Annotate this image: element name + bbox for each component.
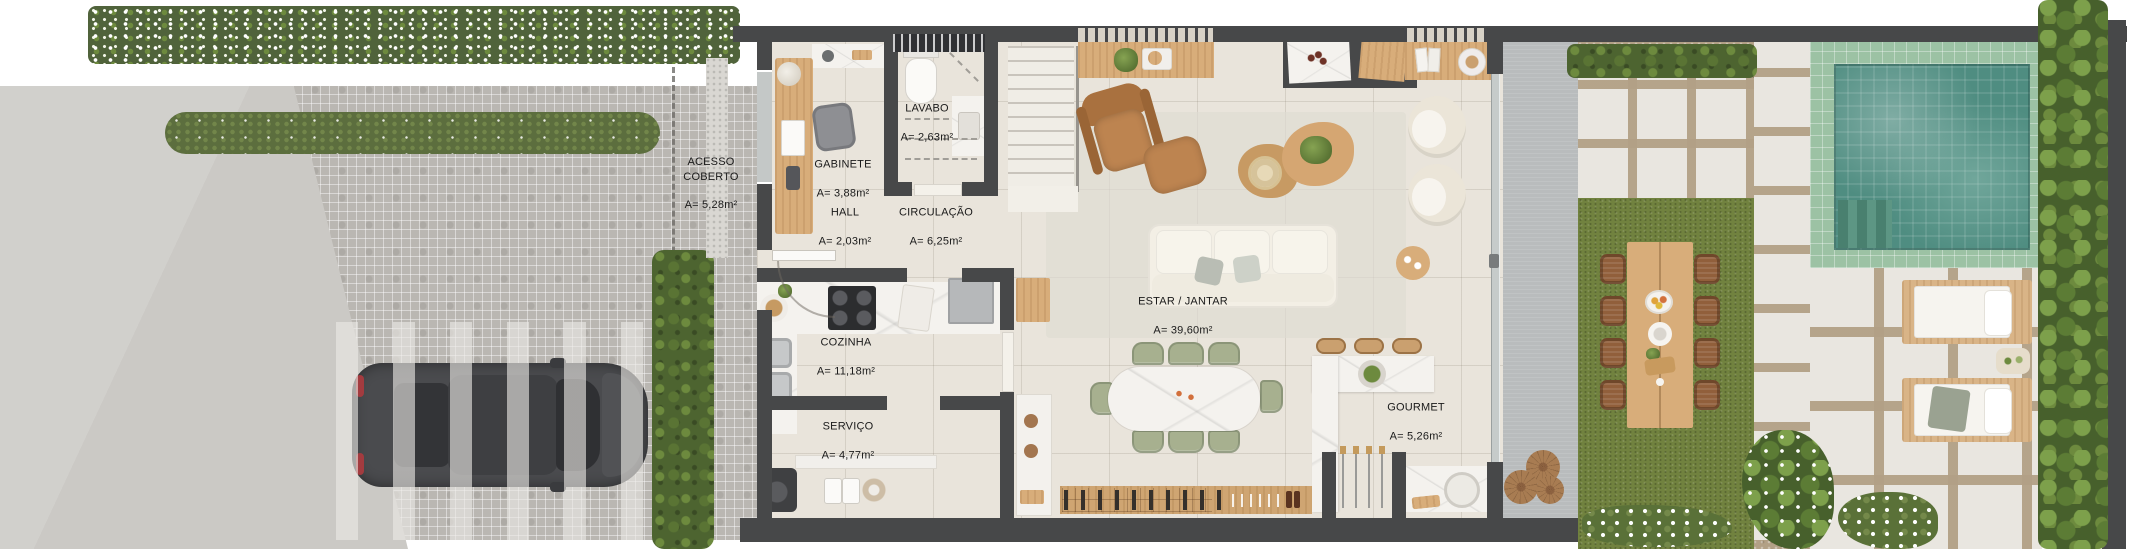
window-top-estar-1 (1075, 28, 1213, 42)
room-area: A= 4,77m² (822, 448, 875, 462)
coffee-table-plant (1300, 136, 1332, 164)
patio-chair-right-3 (1694, 338, 1720, 368)
kitchen-cutting-board (897, 284, 935, 332)
carport-pergola-beams (336, 322, 704, 540)
outer-wall-left-lower (757, 310, 772, 522)
wine-bottles-row (1064, 490, 1224, 510)
outdoor-pouf-2 (1504, 470, 1538, 504)
gourmet-stool-2 (1354, 338, 1384, 354)
boucle-armchair-1-seat (1412, 110, 1446, 148)
leafy-hedge-column (652, 250, 714, 549)
louver-window-lavabo (893, 34, 985, 52)
console-wood-block (1020, 490, 1044, 504)
lounger-2-pillow-sage (1927, 386, 1970, 433)
decanter-1 (1286, 491, 1292, 508)
sliding-door-handle (1489, 254, 1499, 268)
yard-paver-grid (1578, 78, 1754, 198)
room-name: GOURMET (1387, 401, 1445, 415)
side-table-round (1396, 246, 1430, 280)
gabinete-laptop (781, 120, 805, 156)
staircase-treads (1008, 46, 1074, 186)
window-top-estar-2 (1404, 28, 1494, 42)
laundry-wreath (862, 478, 886, 502)
dining-chair-right (1260, 380, 1283, 413)
staircase-landing (1008, 186, 1078, 212)
patio-chair-right-2 (1694, 296, 1720, 326)
outdoor-pouf-3 (1536, 476, 1564, 504)
bbq-niche-wall-left (1322, 452, 1336, 518)
room-label-circulacao: CIRCULAÇÃO A= 6,25m² (899, 191, 973, 262)
console-plant (1114, 48, 1138, 72)
yard-hedge-top (1567, 44, 1757, 78)
perimeter-plants-right (2038, 0, 2108, 549)
console-bowl-2 (1024, 444, 1038, 458)
patio-chair-left-3 (1600, 338, 1626, 368)
bbq-skewer-2 (1355, 450, 1357, 508)
room-area: A= 6,25m² (899, 234, 973, 248)
room-name: CIRCULAÇÃO (899, 206, 973, 220)
wall-cozinha-servico-right (940, 396, 1014, 410)
kitchen-cabinet-corner (1016, 278, 1050, 322)
patio-cup (1656, 378, 1664, 386)
room-area: A= 5,26m² (1387, 429, 1445, 443)
patio-chair-left-2 (1600, 296, 1626, 326)
patio-chair-left-4 (1600, 380, 1626, 410)
patio-chair-left-1 (1600, 254, 1626, 284)
room-label-servico: SERVIÇO A= 4,77m² (822, 405, 875, 476)
room-label-gourmet: GOURMET A= 5,26m² (1387, 386, 1445, 457)
room-area: A= 2,63m² (901, 130, 954, 144)
patio-fruit-platter (1645, 290, 1673, 314)
console-books-2 (1427, 48, 1440, 73)
laundry-basket-2 (842, 478, 860, 504)
room-name: ACESSO COBERTO (683, 155, 738, 184)
wall-gabinete-lavabo (884, 28, 898, 196)
tv-unit-wood-panel (1358, 38, 1407, 82)
room-area: A= 11,18m² (817, 364, 875, 378)
console-tray-box (1148, 51, 1162, 65)
sofa-pillow-2 (1232, 254, 1261, 283)
patio-chair-right-1 (1694, 254, 1720, 284)
console-bowl-1 (1024, 414, 1038, 428)
room-name: SERVIÇO (822, 420, 875, 434)
floor-plan-canvas: ACESSO COBERTO A= 5,28m² GABINETE A= 3,8… (0, 0, 2146, 549)
tv-unit-sculpture (1304, 50, 1328, 66)
dining-chair-bottom-3 (1208, 430, 1240, 453)
gourmet-stool-3 (1392, 338, 1422, 354)
outer-wall-right-lower (1487, 462, 1503, 522)
lounger-1-pillow (1984, 290, 2012, 336)
gabinete-desk-lamp (777, 62, 801, 86)
patio-chair-right-4 (1694, 380, 1720, 410)
bbq-niche-wall-right (1392, 452, 1406, 518)
kitchen-fridge (948, 278, 994, 324)
glasses-row (1232, 494, 1280, 507)
bbq-skewer-handles (1340, 446, 1386, 454)
boucle-armchair-2-seat (1412, 178, 1446, 216)
wall-cozinha-estar-upper (1000, 268, 1014, 330)
coffee-table-hat-decor (1248, 156, 1282, 190)
room-label-lavabo: LAVABO A= 2,63m² (901, 87, 954, 158)
gabinete-phone (786, 166, 800, 190)
room-label-estar-jantar: ESTAR / JANTAR A= 39,60m² (1138, 280, 1228, 351)
sun-lounger-2 (1902, 378, 2032, 442)
cozinha-door-threshold (1002, 332, 1014, 392)
sliding-glass-door (1491, 74, 1500, 462)
room-name: HALL (819, 206, 872, 220)
bbq-skewer-4 (1381, 450, 1383, 508)
bbq-skewer-3 (1368, 450, 1370, 508)
outer-wall-right-upper (1487, 26, 1503, 74)
dining-centerpiece (1170, 384, 1200, 408)
side-concrete-path (1503, 42, 1578, 518)
room-area: A= 39,60m² (1138, 323, 1228, 337)
lounger-2-pillow-white (1984, 388, 2012, 434)
lounger-side-table (1996, 348, 2030, 374)
room-area: A= 2,03m² (819, 234, 872, 248)
gourmet-stool-1 (1316, 338, 1346, 354)
wine-bar (1060, 486, 1312, 514)
flowering-hedge-top (88, 6, 740, 64)
room-label-hall: HALL A= 2,03m² (819, 191, 872, 262)
flower-bush-grass-bottom (1582, 505, 1732, 547)
console-round-tray (1458, 48, 1486, 76)
gabinete-window-left (757, 70, 772, 184)
room-label-cozinha: COZINHA A= 11,18m² (817, 321, 875, 392)
sofa-cushion-3 (1272, 230, 1328, 274)
dining-chair-bottom-1 (1132, 430, 1164, 453)
gabinete-shelf-decor (822, 50, 834, 62)
low-hedge-strip (165, 112, 660, 154)
room-name: COZINHA (817, 336, 875, 350)
patio-plate (1648, 322, 1672, 346)
room-name: GABINETE (814, 158, 871, 172)
gourmet-sink (1444, 472, 1480, 508)
lavabo-sink (958, 112, 980, 140)
room-name: LAVABO (901, 102, 954, 116)
gabinete-shelf-tray (852, 50, 872, 60)
room-area: A= 5,28m² (683, 198, 738, 212)
wall-lavabo-stairs (984, 28, 998, 196)
bbq-skewer-1 (1342, 450, 1344, 508)
pool-steps (1838, 200, 1892, 248)
gourmet-salad-bowl (1358, 360, 1386, 388)
room-name: ESTAR / JANTAR (1138, 295, 1228, 309)
sun-lounger-1 (1902, 280, 2032, 344)
dining-chair-bottom-2 (1168, 430, 1204, 453)
outer-wall-bottom (740, 518, 1578, 542)
decanter-2 (1294, 491, 1300, 508)
room-label-acesso-coberto: ACESSO COBERTO A= 5,28m² (683, 141, 738, 227)
laundry-basket-1 (824, 478, 842, 504)
